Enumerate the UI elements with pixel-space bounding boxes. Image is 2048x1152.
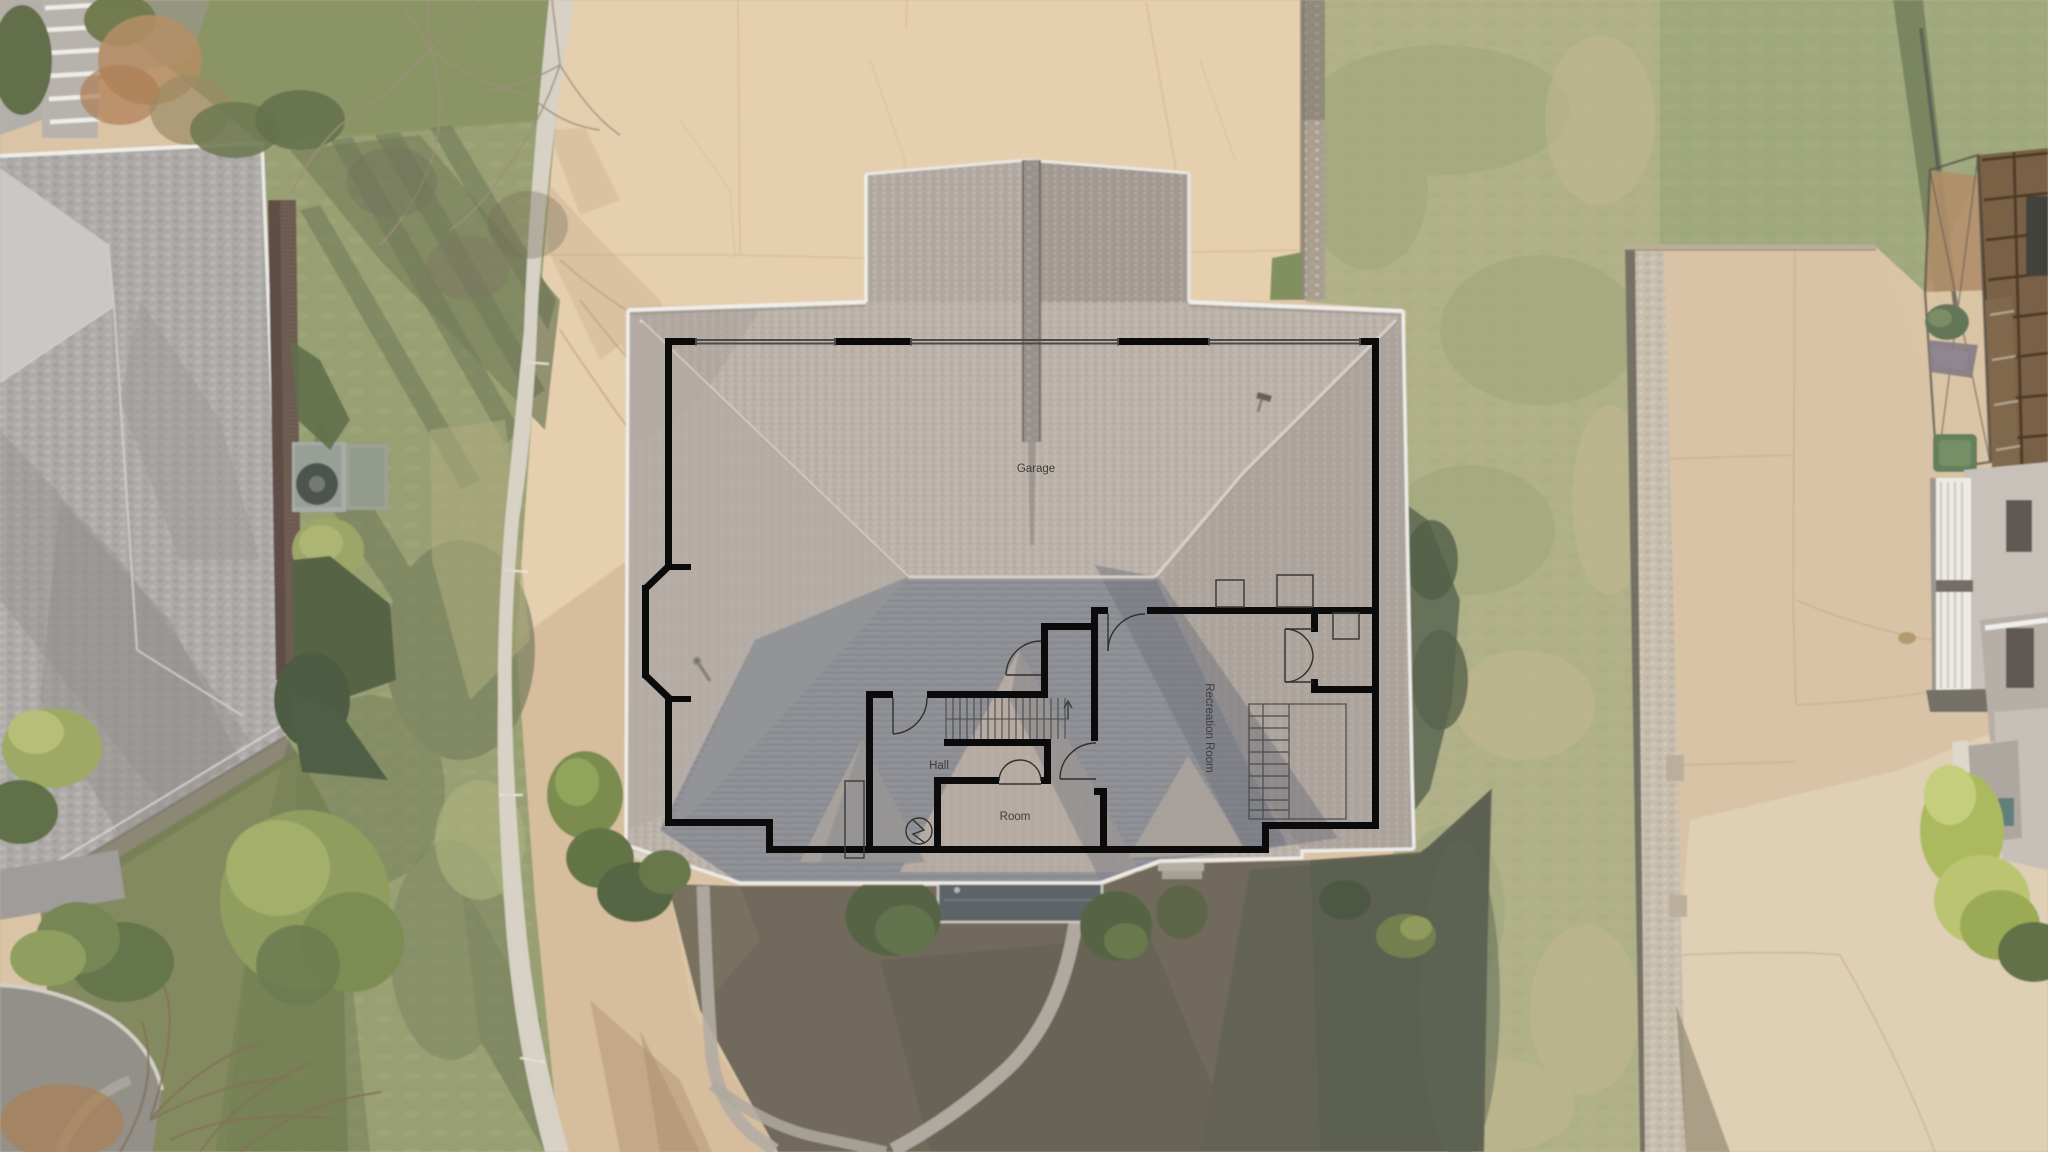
svg-text:Room: Room	[1000, 811, 1031, 823]
svg-text:Hall: Hall	[929, 760, 949, 772]
svg-text:Garage: Garage	[1017, 463, 1055, 475]
svg-text:Recreation Room: Recreation Room	[1203, 683, 1215, 772]
